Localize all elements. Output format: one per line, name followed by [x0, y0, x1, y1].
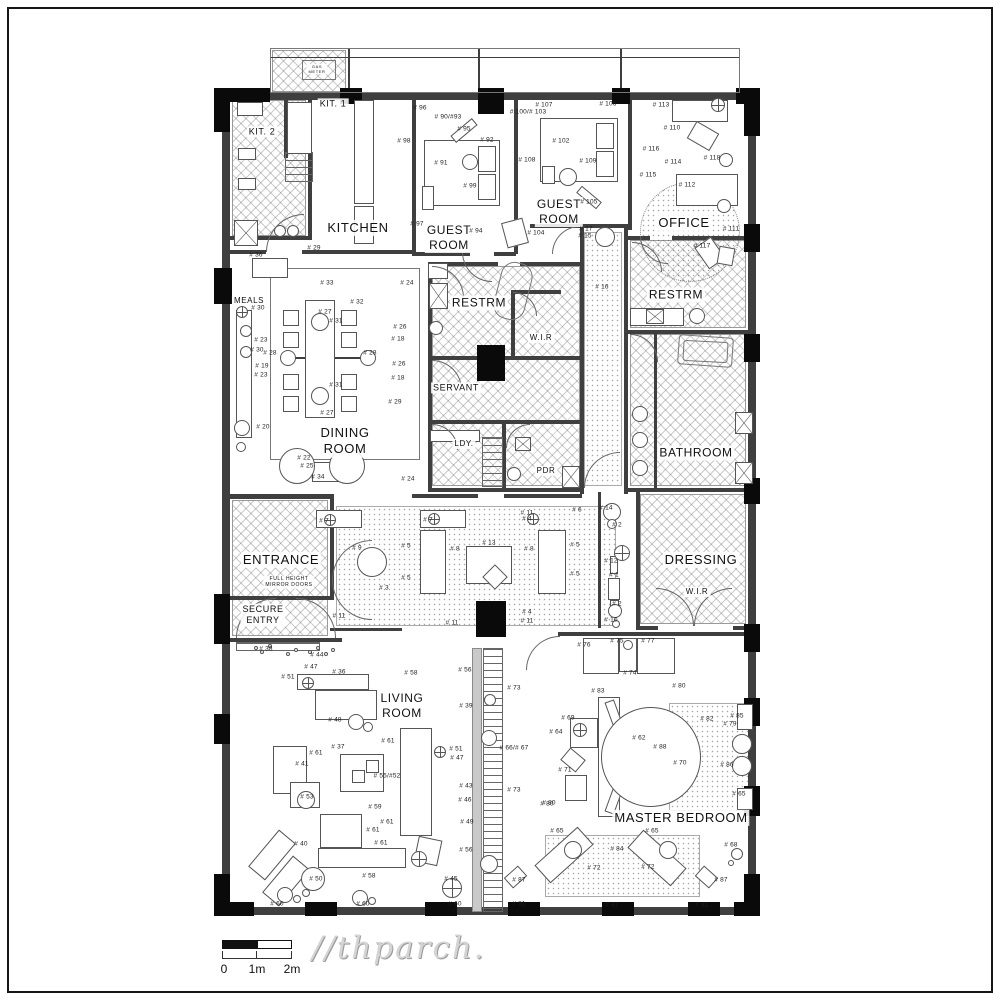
annotation-label: # 62 — [632, 735, 645, 742]
annotation-label: # 5 — [401, 575, 411, 582]
furniture-circle — [717, 199, 731, 213]
room-label: KIT. 2 — [247, 126, 278, 137]
furniture-rect — [238, 148, 256, 160]
annotation-label: # 111 — [723, 226, 739, 233]
annotation-label: # 65 — [550, 828, 563, 835]
annotation-label: # 61 — [380, 819, 393, 826]
annotation-label: # 61 — [381, 738, 394, 745]
room-label: LDY. — [452, 439, 475, 449]
room-label: SERVANT — [431, 382, 481, 393]
annotation-label: # 59 — [368, 804, 381, 811]
furniture-rect — [252, 258, 288, 278]
furniture-rect — [354, 100, 374, 204]
annotation-label: # 44 — [310, 652, 323, 659]
door-arc — [526, 636, 560, 670]
annotation-label: # 81 — [512, 901, 525, 908]
furniture-rect — [315, 690, 377, 720]
furniture-circle — [632, 460, 648, 476]
striped-element — [236, 642, 320, 651]
furniture-rect — [283, 374, 299, 390]
annotation-label: # 9 — [352, 545, 362, 552]
annotation-label: # 73 — [507, 787, 520, 794]
annotation-label: # 26 — [392, 361, 405, 368]
furniture-circle — [363, 722, 373, 732]
room-label: KIT. 1 — [318, 98, 349, 109]
furniture-circle — [294, 648, 298, 652]
fixture-cross-circle — [236, 306, 248, 318]
furniture-circle — [689, 308, 705, 324]
annotation-label: # 2 — [612, 601, 622, 608]
striped-element — [482, 437, 503, 487]
annotation-label: # 70 — [673, 760, 686, 767]
fixture-xbox — [646, 309, 664, 324]
structural-column — [734, 902, 760, 916]
wall-segment — [624, 228, 628, 494]
annotation-label: # 80 — [672, 683, 685, 690]
furniture-circle — [728, 860, 734, 866]
annotation-label: # 81 — [695, 902, 708, 909]
furniture-circle — [595, 227, 615, 247]
annotation-label: # 69 — [561, 715, 574, 722]
structural-column — [214, 594, 230, 644]
annotation-label: # 16 — [595, 284, 608, 291]
annotation-label: # 7 — [423, 517, 433, 524]
annotation-label: # 33 — [320, 280, 333, 287]
room-label: OFFICE — [656, 215, 711, 231]
annotation-label: # 61 — [366, 827, 379, 834]
furniture-rect — [420, 530, 446, 594]
room-label: W.I.R — [528, 333, 555, 343]
annotation-label: # 64 — [549, 729, 562, 736]
room-label: GUEST ROOM — [535, 197, 583, 227]
annotation-label: # 26 — [393, 324, 406, 331]
annotation-label: # 5 — [570, 571, 580, 578]
furniture-rect — [478, 174, 496, 200]
structural-column — [214, 88, 230, 132]
annotation-label: # 51 — [281, 674, 294, 681]
room-label: GAS METER — [307, 64, 328, 74]
annotation-label: # 47 — [450, 755, 463, 762]
annotation-label: # 18 — [391, 336, 404, 343]
furniture-circle — [324, 652, 328, 656]
furniture-circle — [254, 646, 258, 650]
fixture-xbox — [234, 220, 258, 246]
wall-segment — [412, 100, 416, 254]
room-label: BATHROOM — [657, 446, 734, 461]
furniture-rect — [341, 332, 357, 348]
annotation-label: # 58 — [362, 873, 375, 880]
annotation-label: # 36 — [332, 669, 345, 676]
wall-segment — [628, 488, 756, 492]
annotation-label: # 114 — [665, 159, 682, 166]
room-label: KITCHEN — [325, 220, 390, 236]
annotation-label: # 58 — [404, 670, 417, 677]
annotation-label: # 38 — [259, 646, 272, 653]
structural-column — [744, 624, 760, 652]
annotation-label: # 74 — [623, 670, 636, 677]
annotation-label: # 8 — [524, 546, 534, 553]
furniture-rect — [538, 530, 566, 594]
annotation-label: # 30 — [251, 305, 264, 312]
furniture-circle — [484, 694, 496, 706]
annotation-label: # 109 — [579, 158, 596, 165]
door-arc — [552, 226, 580, 254]
room-label: LIVING ROOM — [379, 691, 426, 721]
annotation-label: # 60 — [356, 901, 369, 908]
furniture-rect — [608, 578, 620, 600]
annotation-label: # 96 — [413, 105, 426, 112]
furniture-rect — [422, 186, 434, 210]
furniture-circle — [236, 442, 246, 452]
fixture-cross-circle — [302, 677, 314, 689]
annotation-label: # 80 — [540, 801, 553, 808]
annotation-label: # 71 — [558, 767, 571, 774]
wall-segment — [628, 330, 756, 334]
annotation-label: # 100/# 103 — [510, 109, 547, 116]
annotation-label: # 82 — [700, 716, 713, 723]
floor-plan: KIT. 1KIT. 2KITCHENGUEST ROOMGUEST ROOMO… — [0, 0, 1000, 1000]
furniture-rect — [501, 218, 529, 249]
annotation-label: # 53 — [300, 794, 313, 801]
structural-column — [214, 902, 254, 916]
furniture-circle — [348, 714, 364, 730]
annotation-label: # 87 — [714, 877, 727, 884]
annotation-label: # 11 — [446, 620, 459, 627]
wall-segment — [494, 252, 516, 256]
annotation-label: # 41 — [295, 761, 308, 768]
structural-column — [214, 268, 232, 304]
furniture-circle — [732, 734, 752, 754]
furniture-circle — [311, 387, 329, 405]
wall-segment — [580, 228, 584, 494]
annotation-label: # 25 — [300, 463, 313, 470]
annotation-label: # 85 — [730, 713, 743, 720]
annotation-label: # 11 — [333, 613, 346, 620]
structural-column — [214, 714, 230, 744]
structural-column — [305, 902, 337, 916]
room-label: PDR — [535, 466, 558, 476]
furniture-circle — [623, 640, 633, 650]
shelf-panel — [472, 648, 482, 912]
wall-segment — [330, 628, 402, 631]
annotation-label: # 36 — [249, 252, 262, 259]
annotation-label: # 24 — [400, 280, 413, 287]
annotation-label: # 116 — [643, 146, 660, 153]
annotation-label: # 43 — [459, 783, 472, 790]
annotation-label: # 15 — [578, 233, 591, 240]
furniture-rect — [341, 374, 357, 390]
wall-segment — [222, 494, 334, 499]
annotation-label: # 61 — [309, 750, 322, 757]
scale-label-1m: 1m — [249, 962, 266, 976]
annotation-label: # 27 — [318, 309, 331, 316]
furniture-rect — [287, 102, 312, 154]
furniture-rect — [565, 775, 587, 801]
annotation-label: # 87 — [512, 877, 525, 884]
annotation-label: # 95 — [457, 126, 470, 133]
annotation-label: # 32 — [350, 299, 363, 306]
furniture-rect — [687, 121, 720, 151]
annotation-label: # 86 — [720, 762, 733, 769]
furniture-circle — [234, 420, 250, 436]
annotation-label: # 47 — [304, 664, 317, 671]
annotation-label: # 6 — [572, 507, 582, 514]
furniture-rect — [400, 728, 432, 836]
room-label: RESTRM — [450, 296, 508, 311]
wall-segment — [428, 356, 582, 360]
annotation-label: # 90/#93 — [435, 114, 462, 121]
fixture-xbox — [735, 412, 753, 434]
room-label: ENTRANCE — [241, 552, 321, 568]
annotation-label: # 45 — [444, 876, 457, 883]
annotation-label: # 19 — [255, 363, 268, 370]
annotation-label: # 75 — [610, 638, 623, 645]
room-label: MASTER BEDROOM — [612, 810, 749, 826]
room-label: RESTRM — [647, 288, 705, 303]
room-label: GUEST ROOM — [425, 223, 473, 253]
furniture-circle — [507, 467, 521, 481]
furniture-circle — [481, 730, 497, 746]
annotation-label: # 5 — [401, 543, 411, 550]
annotation-label: # 56 — [458, 667, 471, 674]
annotation-label: # 61 — [374, 840, 387, 847]
annotation-label: # 31 — [329, 318, 342, 325]
annotation-label: # 113 — [653, 102, 670, 109]
scale-bar-open-segment — [257, 940, 292, 949]
annotation-label: # 27 — [320, 410, 333, 417]
annotation-label: # 23 — [254, 372, 267, 379]
annotation-label: # 117 — [694, 243, 711, 250]
annotation-label: # 4 — [522, 516, 532, 523]
wall-segment — [636, 626, 658, 630]
annotation-label: # 73 — [507, 685, 520, 692]
annotation-label: # 22 — [297, 455, 310, 462]
fixture-cross-circle — [411, 851, 427, 867]
fixture-xbox — [562, 466, 580, 488]
annotation-label: # 1 — [609, 572, 619, 579]
annotation-label: # 83 — [591, 688, 604, 695]
furniture-rect — [283, 310, 299, 326]
floor-plan-canvas: KIT. 1KIT. 2KITCHENGUEST ROOMGUEST ROOMO… — [0, 0, 1000, 1000]
annotation-label: # 92 — [480, 137, 493, 144]
furniture-circle — [302, 889, 310, 897]
furniture-rect — [238, 178, 256, 190]
furniture-rect — [283, 332, 299, 348]
fixture-cross-circle — [711, 98, 725, 112]
annotation-label: # 72 — [641, 864, 654, 871]
wall-segment — [222, 92, 230, 915]
annotation-label: # 79 — [723, 721, 736, 728]
annotation-label: # 29 — [307, 245, 320, 252]
room-label: DINING ROOM — [318, 425, 371, 458]
wall-segment — [412, 494, 478, 498]
furniture-rect — [366, 760, 379, 773]
annotation-label: # 10 — [604, 617, 617, 624]
annotation-label: # 99 — [463, 183, 476, 190]
wall-segment — [628, 100, 632, 230]
structural-column — [744, 88, 760, 136]
annotation-label: # 94 — [469, 228, 482, 235]
furniture-rect — [596, 151, 614, 177]
annotation-label: # 88 — [653, 744, 666, 751]
annotation-label: # 40 — [294, 841, 307, 848]
annotation-label: # 49 — [460, 819, 473, 826]
annotation-label: # 118 — [704, 155, 721, 162]
furniture-circle — [429, 321, 443, 335]
structural-column — [744, 224, 760, 252]
furniture-circle — [731, 848, 743, 860]
furniture-rect — [717, 246, 736, 267]
annotation-label: # 23 — [254, 337, 267, 344]
furniture-rect — [283, 396, 299, 412]
wall-segment — [520, 262, 582, 266]
furniture-circle — [632, 406, 648, 422]
annotation-label: # 46 — [458, 797, 471, 804]
annotation-label: # 107 — [535, 102, 552, 109]
annotation-label: # 18 — [391, 375, 404, 382]
annotation-label: # 24 — [401, 476, 414, 483]
wall-segment — [222, 596, 334, 600]
annotation-label: # 102 — [552, 138, 569, 145]
room-label: W.I.R — [684, 587, 711, 597]
furniture-circle — [632, 432, 648, 448]
annotation-label: # 50 — [309, 876, 322, 883]
furniture-circle — [601, 707, 701, 807]
watermark-logo: //thparch. — [312, 930, 486, 966]
annotation-label: # 5 — [570, 542, 580, 549]
fixture-cross-circle — [434, 746, 446, 758]
annotation-label: # 4 — [522, 609, 532, 616]
furniture-circle — [462, 154, 478, 170]
furniture-circle — [240, 325, 252, 337]
annotation-label: # 39 — [459, 703, 472, 710]
furniture-rect — [478, 146, 496, 172]
wall-segment — [598, 492, 601, 628]
annotation-label: # 98 — [397, 138, 410, 145]
annotation-label: # 28 — [363, 350, 376, 357]
annotation-label: # 110 — [664, 125, 681, 132]
annotation-label: # 60 — [448, 901, 461, 908]
annotation-label: # 97 — [410, 221, 423, 228]
furniture-rect — [596, 123, 614, 149]
annotation-label: # 34 — [311, 474, 324, 481]
annotation-label: # 13 — [482, 540, 495, 547]
furniture-rect — [352, 770, 365, 783]
annotation-label: # 68 — [724, 842, 737, 849]
structural-column — [477, 345, 505, 381]
annotation-label: # 37 — [331, 744, 344, 751]
room-label: FULL HEIGHT MIRROR DOORS — [263, 576, 314, 589]
annotation-label: # 30 — [250, 347, 263, 354]
annotation-label: # 3 — [379, 585, 389, 592]
furniture-rect — [237, 102, 263, 116]
door-arc — [296, 598, 336, 638]
furniture-rect — [318, 848, 406, 868]
annotation-label: # 115 — [640, 172, 657, 179]
scale-baseline — [222, 958, 292, 959]
annotation-label: # 7 — [319, 518, 329, 525]
annotation-label: # 60 — [270, 901, 283, 908]
furniture-circle — [559, 168, 577, 186]
outline-shape — [682, 340, 728, 363]
fixture-cross-circle — [573, 723, 587, 737]
annotation-label: # 11 — [521, 618, 534, 625]
annotation-label: # 56 — [459, 847, 472, 854]
scale-label-2m: 2m — [284, 962, 301, 976]
furniture-circle — [286, 652, 290, 656]
annotation-label: # 105 — [580, 199, 597, 206]
annotation-label: # 104 — [527, 230, 544, 237]
wall-segment — [428, 488, 582, 492]
annotation-label: # 66/# 67 — [500, 745, 529, 752]
furniture-circle — [659, 841, 677, 859]
annotation-label: # 51 — [449, 746, 462, 753]
annotation-label: # 76 — [577, 642, 590, 649]
annotation-label: # 31 — [329, 382, 342, 389]
annotation-label: # 84 — [610, 846, 623, 853]
furniture-rect — [320, 814, 362, 848]
furniture-circle — [316, 646, 320, 650]
annotation-label: # 112 — [679, 182, 696, 189]
furniture-circle — [719, 153, 733, 167]
annotation-label: # 65 — [732, 791, 745, 798]
furniture-rect — [542, 166, 555, 184]
furniture-rect — [341, 396, 357, 412]
wall-segment — [504, 494, 582, 498]
scale-bar-filled-segment — [222, 940, 257, 949]
annotation-label: # 81 — [605, 902, 618, 909]
annotation-label: # 48 — [328, 717, 341, 724]
annotation-label: # 28 — [263, 350, 276, 357]
furniture-circle — [331, 648, 335, 652]
annotation-label: # 29 — [388, 399, 401, 406]
furniture-circle — [732, 756, 752, 776]
annotation-label: # 55/#52 — [374, 773, 401, 780]
annotation-label: # 108 — [518, 157, 535, 164]
structural-column — [476, 601, 506, 637]
structural-column — [744, 334, 760, 362]
outline-shape — [270, 48, 740, 93]
annotation-label: # 12 — [604, 558, 617, 565]
wall-segment — [558, 632, 756, 636]
annotation-label: # 72 — [587, 865, 600, 872]
furniture-circle — [480, 855, 498, 873]
annotation-label: # 65 — [645, 828, 658, 835]
striped-element — [285, 152, 313, 182]
furniture-circle — [311, 313, 329, 331]
stipple-region — [584, 232, 622, 486]
furniture-circle — [564, 841, 582, 859]
annotation-label: # 20 — [256, 424, 269, 431]
room-label: DRESSING — [663, 552, 740, 568]
annotation-label: # 2 — [612, 522, 622, 529]
scale-label-0: 0 — [221, 962, 228, 976]
annotation-label: # 77 — [641, 638, 654, 645]
annotation-label: # 14 — [599, 505, 612, 512]
furniture-circle — [293, 895, 301, 903]
annotation-label: # 91 — [434, 160, 447, 167]
room-label: SECURE ENTRY — [240, 604, 285, 627]
wall-segment — [636, 492, 640, 628]
annotation-label: # 17 — [579, 226, 592, 233]
furniture-rect — [341, 310, 357, 326]
annotation-label: # 106 — [599, 101, 616, 108]
furniture-circle — [280, 350, 296, 366]
annotation-label: # 8 — [450, 546, 460, 553]
fixture-xbox — [735, 462, 753, 484]
